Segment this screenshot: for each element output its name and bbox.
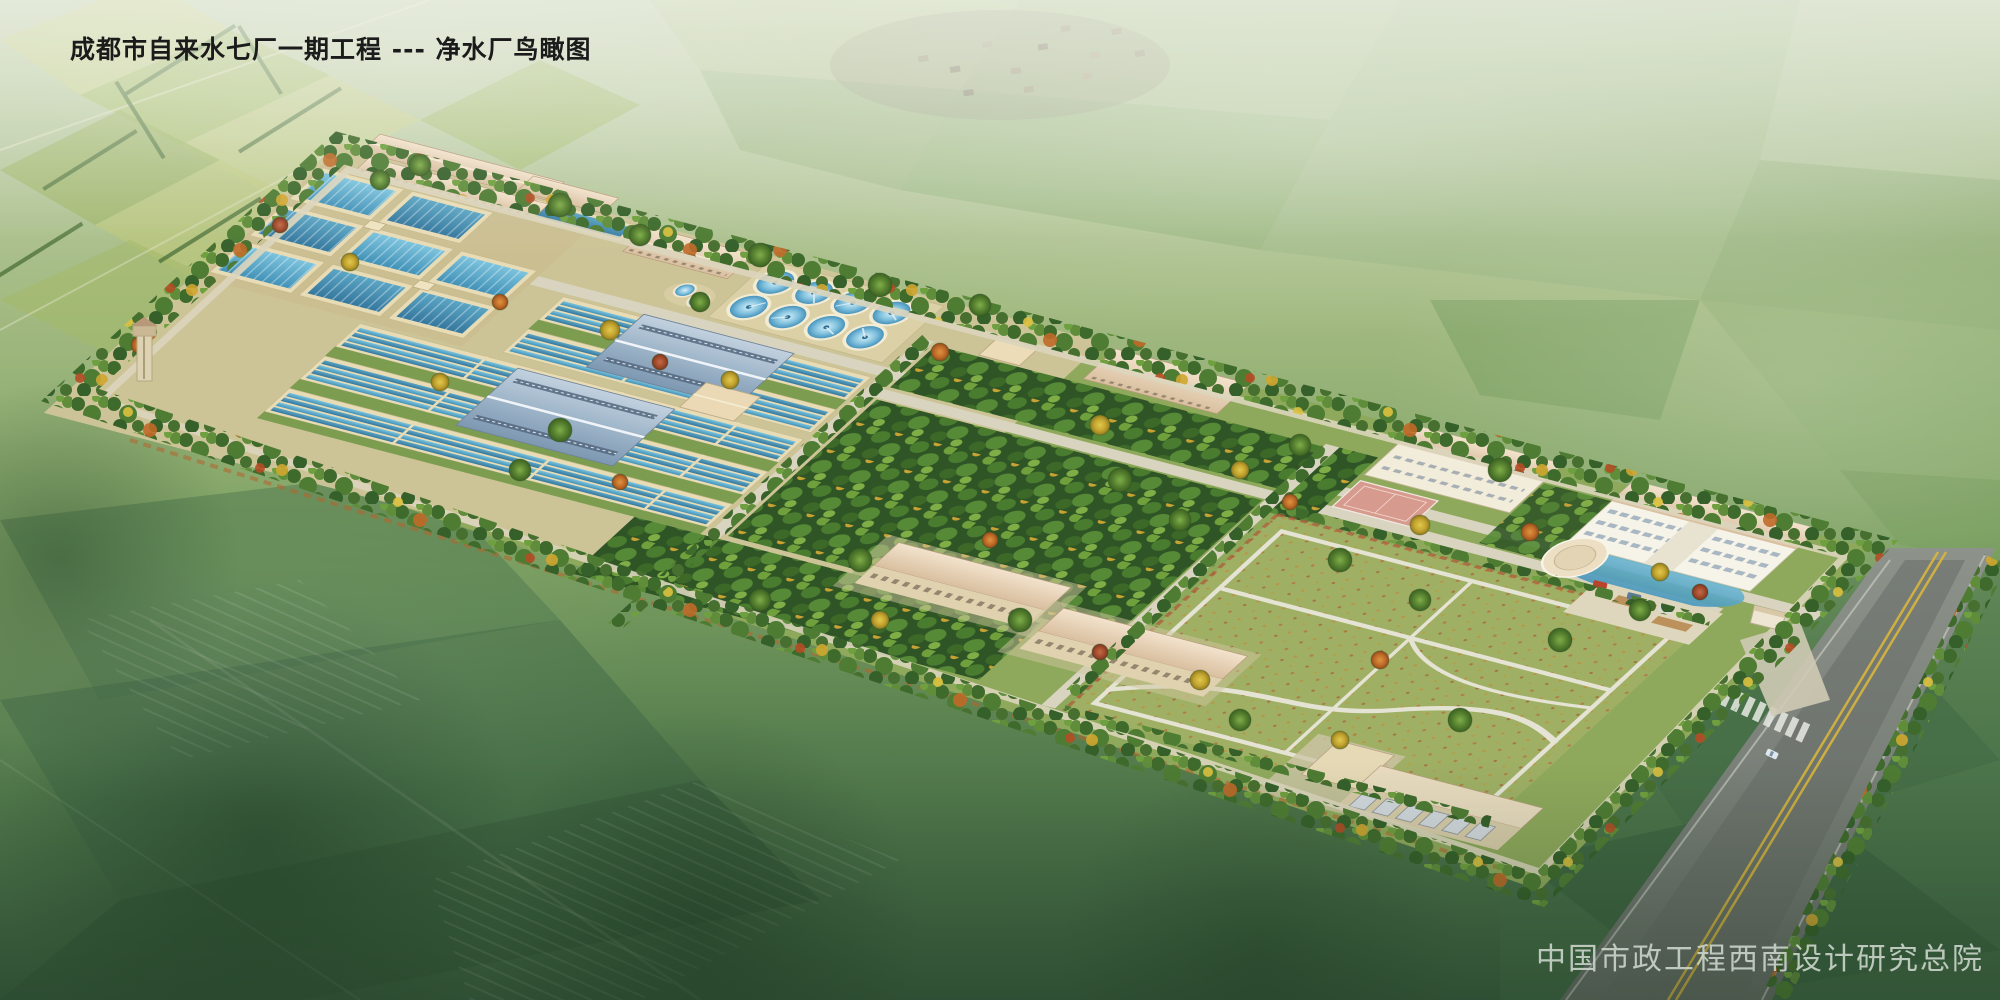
aerial-rendering xyxy=(0,0,2000,1000)
drawing-title: 成都市自来水七厂一期工程 --- 净水厂鸟瞰图 xyxy=(70,30,592,66)
rendering-canvas: 成都市自来水七厂一期工程 --- 净水厂鸟瞰图 中国市政工程西南设计研究总院 xyxy=(0,0,2000,1000)
design-institute-credit: 中国市政工程西南设计研究总院 xyxy=(1536,934,1984,978)
